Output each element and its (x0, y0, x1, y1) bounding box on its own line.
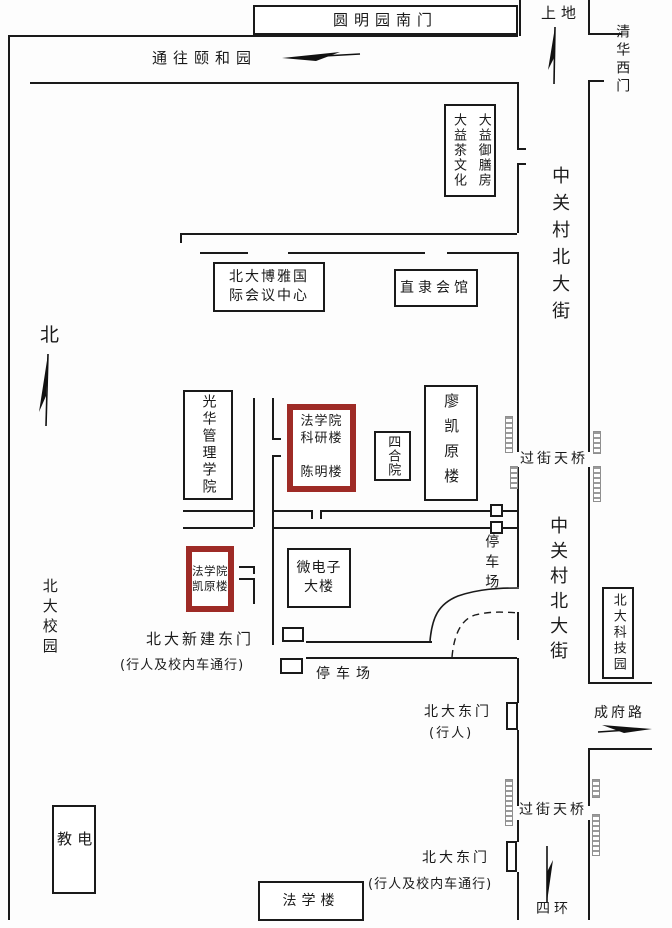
footbridge-stairs (592, 779, 600, 798)
street-west-wall (517, 820, 519, 842)
inner-road (183, 510, 253, 512)
inner-road (322, 510, 491, 512)
label-east-gate-south-note: (行人及校内车通行) (368, 876, 492, 895)
inner-road-tick (311, 510, 313, 519)
inner-road (180, 233, 517, 235)
street-west-wall (517, 730, 519, 806)
label-qinghua-west-gate: 清华西门 (612, 24, 632, 96)
label-east-gate-south: 北大东门 (422, 848, 490, 868)
inner-road-tick (320, 510, 322, 519)
north-arrow-icon (34, 348, 58, 430)
label-parking-horizontal: 停车场 (316, 664, 376, 684)
building-dayi-teahouse: 大益御膳房 大益茶文化 (444, 104, 496, 197)
label-footbridge-1: 过街天桥 (520, 449, 588, 469)
label-new-east-gate: 北大新建东门 (146, 629, 254, 651)
building-boya-conference-center: 北大博雅国 际会议中心 (213, 262, 325, 312)
label-east-gate-pedestrian-note: (行人) (429, 725, 473, 744)
shangdi-up-arrow-icon (544, 24, 564, 88)
pku-area-map: 圆明园南门 大益御膳房 大益茶文化 北大博雅国 际会议中心 直隶会馆 光华管理学… (0, 0, 672, 928)
inner-road (272, 510, 311, 512)
street-west-wall (517, 82, 519, 148)
street-east-edge (588, 820, 590, 920)
entrance-stub (253, 578, 255, 604)
east-gate-pedestrian-rect (506, 702, 518, 730)
inner-road (183, 527, 253, 529)
label-north: 北 (40, 322, 59, 350)
label-footbridge-2: 过街天桥 (519, 800, 587, 820)
label-zhongguancun-street-lower: 中关村北大街 (544, 516, 570, 666)
footbridge-stairs (593, 431, 601, 454)
building-pku-science-park: 北大科技园 (602, 587, 634, 679)
label-pku-campus: 北大校园 (38, 578, 60, 658)
entrance-stub (239, 578, 253, 580)
chengfu-road-edge (588, 748, 652, 750)
campus-west-boundary (8, 35, 10, 920)
label-parking-vertical: 停车场 (481, 534, 501, 594)
building-dianjiao: 电教 (52, 805, 96, 894)
vehicle-gate-post (490, 521, 503, 534)
street-west-wall (517, 872, 519, 920)
building-zhili-guildhall: 直隶会馆 (394, 269, 478, 307)
building-liaokaiyuan: 廖凯原楼 (424, 385, 478, 501)
street-west-wall (519, 0, 521, 36)
entrance-stub (253, 566, 255, 574)
street-east-edge (588, 467, 590, 682)
footbridge-stairs (510, 466, 518, 489)
road-north-bottom (30, 82, 517, 84)
street-east-edge (588, 748, 590, 806)
inner-lane (272, 398, 274, 440)
label-zhongguancun-street-upper: 中关村北大街 (546, 166, 572, 328)
building-microelectronics: 微电子 大楼 (287, 548, 351, 608)
footbridge-stairs (505, 416, 513, 453)
inner-road (447, 252, 517, 254)
inner-road (200, 252, 248, 254)
street-east-edge (588, 0, 590, 33)
label-chengfu-road: 成府路 (594, 703, 645, 723)
inner-lane (272, 455, 274, 645)
inner-road (503, 510, 517, 512)
building-law-kaiyuan: 法学院 凯原楼 (186, 546, 234, 612)
footbridge-stairs (593, 466, 601, 502)
entrance-stub (239, 566, 253, 568)
fourth-ring-down-arrow-icon (536, 844, 558, 906)
street-west-wall (517, 252, 519, 452)
building-yuanmingyuan-south-gate: 圆明园南门 (253, 5, 518, 35)
inner-road (288, 252, 425, 254)
building-law-building: 法学楼 (258, 881, 364, 921)
building-guanghua-school: 光华管理学院 (183, 390, 233, 500)
gate-post (280, 658, 303, 674)
driveway-stub (517, 163, 526, 165)
label-shangdi: 上地 (541, 3, 581, 25)
label-fourth-ring: 四环 (536, 899, 572, 919)
road-north-top (8, 35, 518, 37)
east-gate-south-rect (506, 841, 517, 872)
street-east-stub (588, 80, 604, 82)
chengfu-road-edge (588, 682, 652, 684)
driveway-stub (517, 148, 526, 150)
inner-lane-stub (272, 438, 281, 440)
label-to-summer-palace: 通往颐和园 (152, 48, 257, 70)
footbridge-stairs (505, 779, 513, 826)
inner-road-tick (180, 233, 182, 243)
building-siheyuan: 四合院 (374, 431, 411, 481)
building-law-research-chenming: 法学院 科研楼 陈明楼 (287, 404, 356, 492)
street-east-edge (588, 80, 590, 452)
gate-post (282, 627, 304, 642)
label-east-gate-pedestrian: 北大东门 (424, 702, 492, 722)
summer-palace-left-arrow-icon (280, 46, 364, 70)
vehicle-gate-post (490, 504, 503, 517)
street-west-wall (517, 165, 519, 233)
inner-lane (253, 398, 255, 527)
footbridge-stairs (592, 814, 600, 856)
label-new-east-gate-note: (行人及校内车通行) (120, 657, 244, 676)
